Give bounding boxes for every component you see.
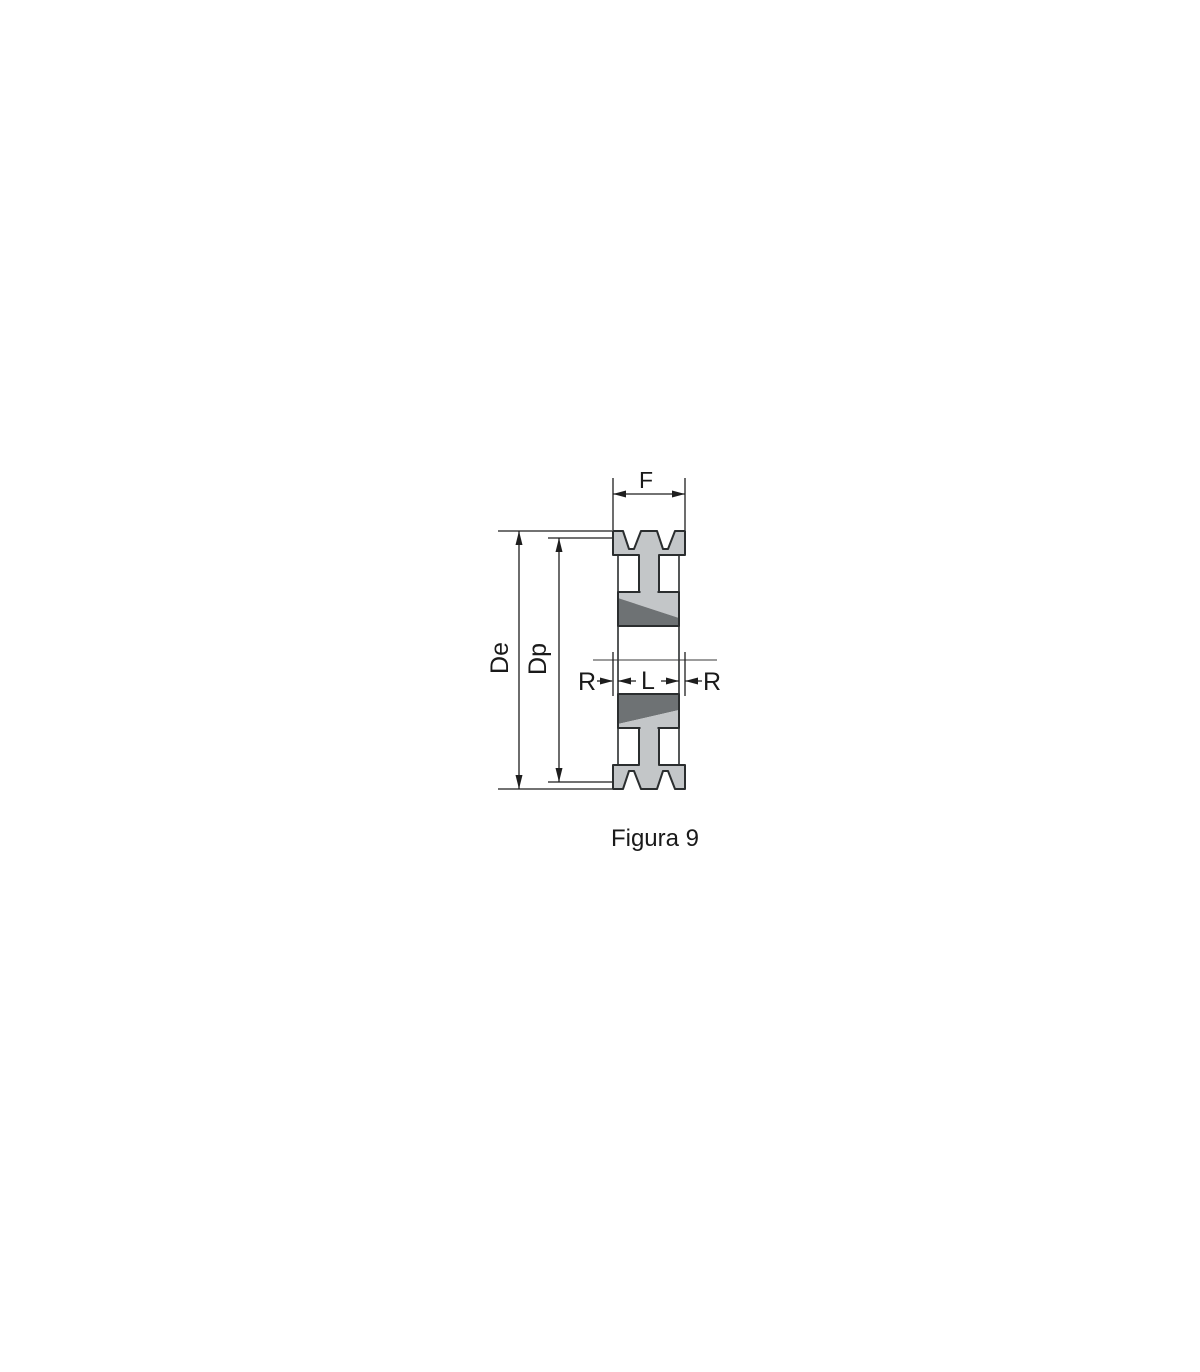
arrowhead-f-right [672, 491, 685, 498]
taper-bush-lower [618, 694, 679, 728]
pulley-drawing [593, 531, 717, 789]
label-offset-right: R [703, 668, 721, 696]
arrowhead-l-right [666, 678, 679, 685]
web-hub-junction-patch-bottom [641, 725, 658, 733]
arrowhead-l-left [618, 678, 631, 685]
arrowhead-r-right [685, 678, 698, 685]
figure-caption: Figura 9 [611, 825, 699, 852]
arrowhead-f-left [613, 491, 626, 498]
label-pitch-diameter: Dp [524, 643, 552, 675]
arrowhead-r-left [600, 678, 613, 685]
label-bush-length: L [641, 667, 655, 695]
label-offset-left: R [578, 668, 596, 696]
arrowhead-de-top [516, 531, 523, 545]
dimension-r-l-r: R L R [578, 652, 721, 696]
pulley-figure: F De Dp [0, 0, 1200, 1372]
document-page: F De Dp [0, 0, 1200, 1372]
rim-and-web-bottom [613, 728, 685, 789]
taper-bush-upper [618, 592, 679, 626]
arrowhead-de-bottom [516, 775, 523, 789]
arrowhead-dp-bottom [556, 768, 563, 782]
label-face-width: F [639, 467, 653, 493]
web-hub-junction-patch-top [641, 588, 658, 596]
dimension-face-width: F [613, 467, 685, 530]
arrowhead-dp-top [556, 538, 563, 552]
label-outside-diameter: De [486, 642, 514, 674]
rim-and-web-top [613, 531, 685, 592]
